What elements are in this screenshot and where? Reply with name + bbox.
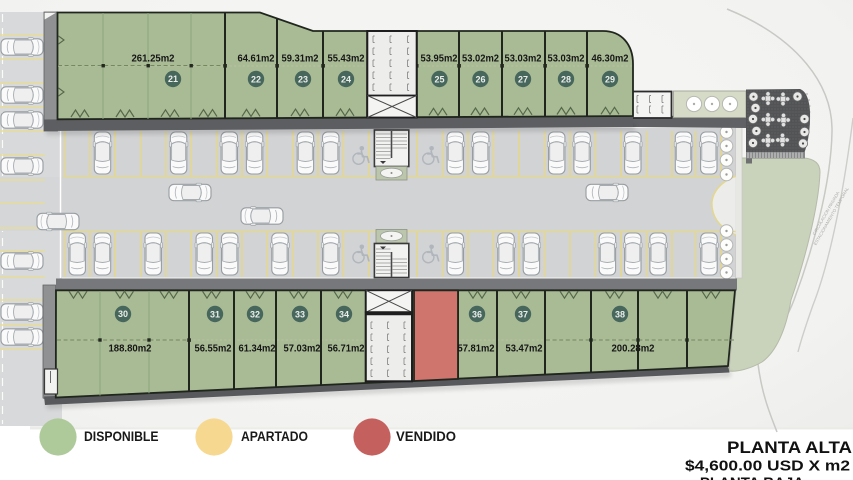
svg-text:23: 23: [298, 74, 308, 84]
svg-text:261.25m2: 261.25m2: [132, 54, 175, 65]
svg-text:PLANTA ALTA: PLANTA ALTA: [727, 438, 852, 457]
svg-text:56.55m2: 56.55m2: [195, 344, 232, 355]
svg-text:28: 28: [561, 74, 571, 84]
svg-text:53.47m2: 53.47m2: [506, 344, 543, 355]
svg-text:57.03m2: 57.03m2: [284, 344, 321, 355]
svg-text:53.02m2: 53.02m2: [462, 54, 499, 65]
svg-text:64.61m2: 64.61m2: [238, 54, 275, 65]
svg-text:38: 38: [615, 309, 625, 319]
svg-text:57.81m2: 57.81m2: [458, 344, 495, 355]
svg-text:26: 26: [475, 74, 485, 84]
svg-text:55.43m2: 55.43m2: [328, 54, 365, 65]
svg-text:53.03m2: 53.03m2: [505, 54, 542, 65]
svg-text:37: 37: [518, 309, 528, 319]
svg-text:$4,600.00 USD X m2: $4,600.00 USD X m2: [685, 457, 850, 474]
svg-text:46.30m2: 46.30m2: [592, 54, 629, 65]
svg-text:32: 32: [250, 309, 260, 319]
svg-text:25: 25: [434, 74, 444, 84]
svg-text:29: 29: [605, 74, 615, 84]
svg-text:21: 21: [168, 74, 178, 84]
svg-text:61.34m2: 61.34m2: [239, 344, 276, 355]
svg-text:188.80m2: 188.80m2: [109, 344, 152, 355]
svg-text:24: 24: [341, 74, 351, 84]
svg-text:APARTADO: APARTADO: [241, 429, 308, 444]
svg-text:53.95m2: 53.95m2: [421, 54, 458, 65]
svg-text:DISPONIBLE: DISPONIBLE: [84, 429, 159, 444]
svg-text:33: 33: [295, 309, 305, 319]
svg-text:31: 31: [210, 309, 220, 319]
svg-text:53.03m2: 53.03m2: [548, 54, 585, 65]
svg-text:36: 36: [472, 309, 482, 319]
svg-text:34: 34: [339, 309, 349, 319]
svg-text:30: 30: [118, 309, 128, 319]
svg-text:PLANTA BAJA: PLANTA BAJA: [700, 474, 804, 480]
svg-text:56.71m2: 56.71m2: [328, 344, 365, 355]
svg-text:59.31m2: 59.31m2: [282, 54, 319, 65]
svg-text:VENDIDO: VENDIDO: [396, 429, 456, 444]
svg-text:22: 22: [251, 74, 261, 84]
svg-text:200.28m2: 200.28m2: [612, 344, 655, 355]
svg-text:27: 27: [518, 74, 528, 84]
